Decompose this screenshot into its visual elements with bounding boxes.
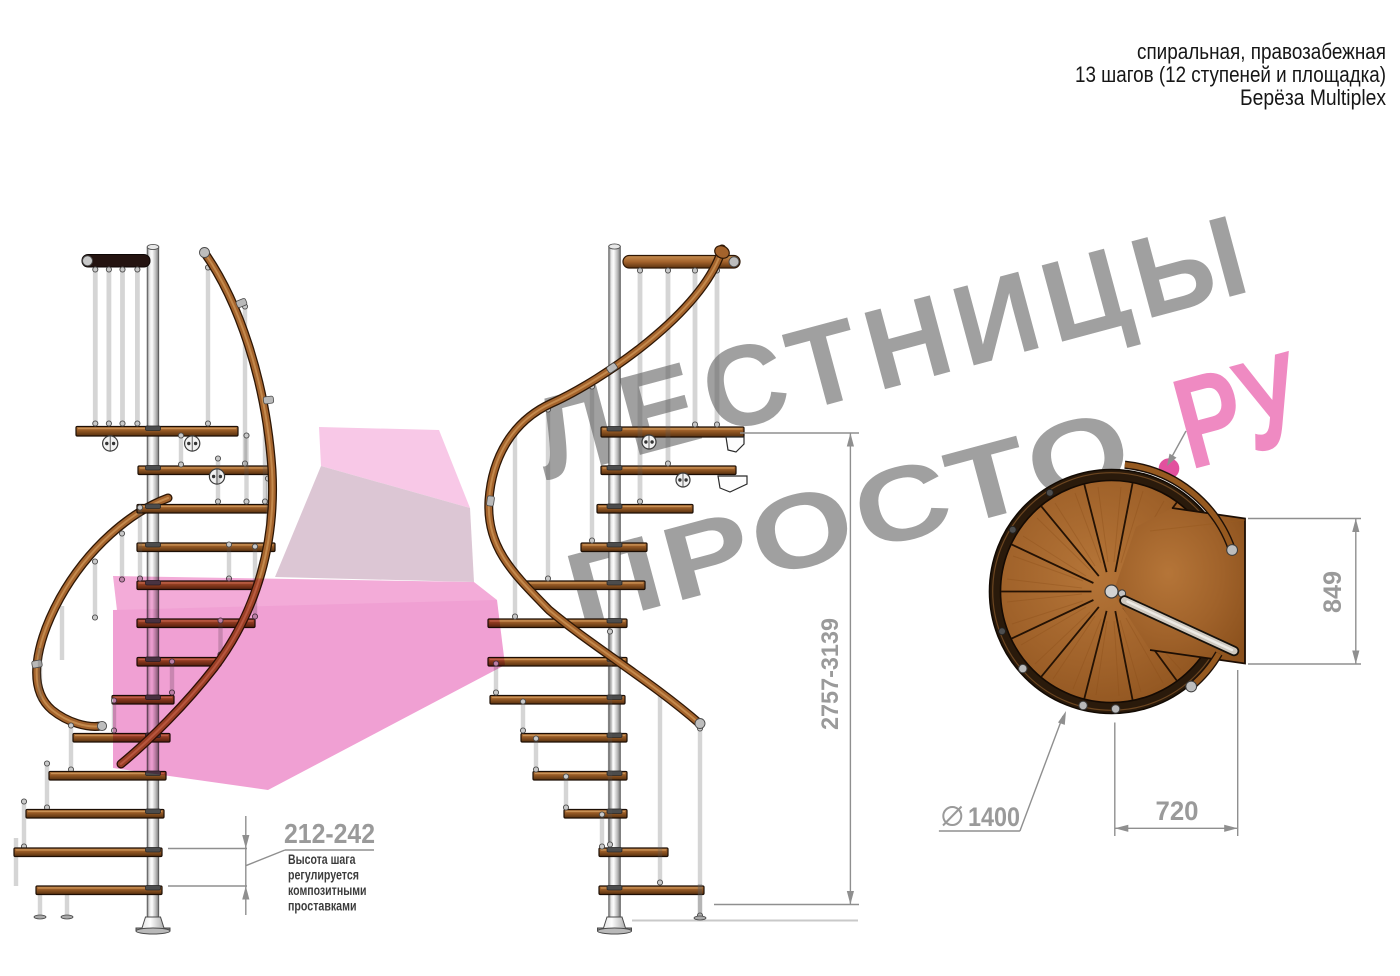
svg-text:композитными: композитными — [288, 883, 367, 898]
svg-text:212-242: 212-242 — [284, 818, 375, 849]
svg-text:регулируется: регулируется — [288, 868, 359, 883]
svg-text:Высота шага: Высота шага — [288, 852, 356, 867]
svg-text:спиральная, правозабежная: спиральная, правозабежная — [1137, 39, 1386, 64]
svg-text:1400: 1400 — [968, 802, 1020, 832]
svg-text:проставками: проставками — [288, 899, 357, 914]
svg-text:Берёза Multiplex: Берёза Multiplex — [1240, 85, 1386, 110]
svg-text:849: 849 — [1319, 571, 1347, 613]
svg-text:2757-3139: 2757-3139 — [817, 618, 844, 730]
svg-text:720: 720 — [1156, 796, 1199, 826]
svg-text:13 шагов (12 ступеней и площад: 13 шагов (12 ступеней и площадка) — [1075, 62, 1386, 87]
